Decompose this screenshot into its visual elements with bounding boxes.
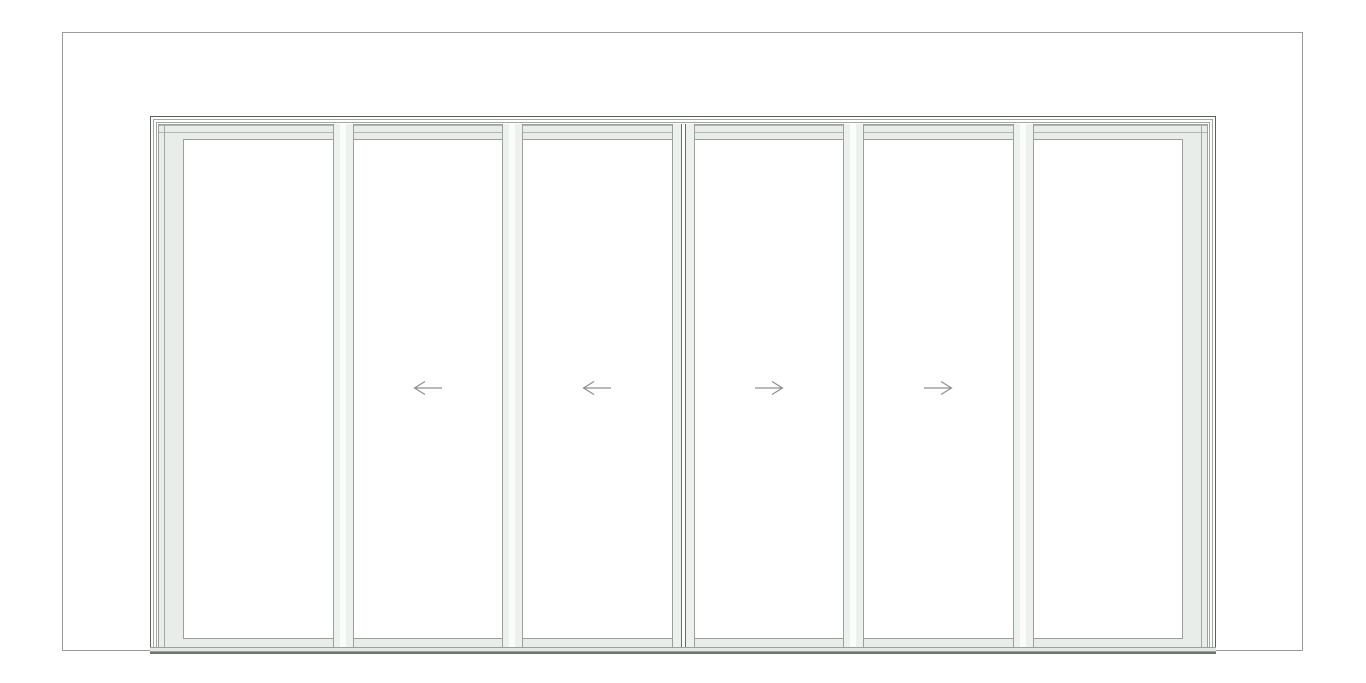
slide-right-arrow-icon (921, 379, 955, 397)
door-opening (183, 139, 1183, 639)
slide-right-arrow-icon (752, 379, 786, 397)
panel-mullion (502, 124, 523, 650)
slide-left-arrow-icon (411, 379, 445, 397)
door-panel-3-sliding-panel (523, 140, 672, 638)
door-panel-2-sliding-panel (354, 140, 503, 638)
sill-track (150, 647, 1216, 654)
left-jamb-line (164, 124, 165, 647)
elevation-drawing-canvas (0, 0, 1366, 683)
door-panel-5-sliding-panel (864, 140, 1013, 638)
panel-mullion (333, 124, 354, 650)
center-meeting-stile (672, 124, 695, 650)
right-jamb-line (1201, 124, 1202, 647)
panel-mullion (843, 124, 864, 650)
door-panel-4-sliding-panel (695, 140, 844, 638)
panel-mullion (1013, 124, 1034, 650)
door-panel-1-fixed-panel (184, 140, 333, 638)
slide-left-arrow-icon (580, 379, 614, 397)
door-panel-6-fixed-panel (1034, 140, 1183, 638)
sliding-door-assembly (150, 116, 1216, 654)
